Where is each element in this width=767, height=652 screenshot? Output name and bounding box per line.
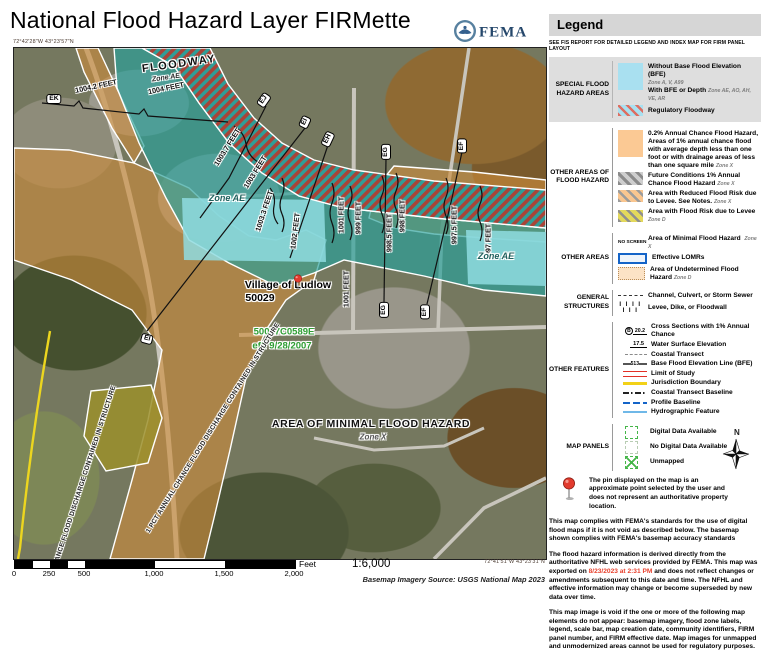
cross-section-value: 20.2 <box>633 328 647 335</box>
export-date: 8/23/2023 at 2:31 PM <box>589 568 653 575</box>
coastal-transect-icon <box>613 354 647 355</box>
legend-section-structures: GENERAL STRUCTURES Channel, Culvert, or … <box>549 290 761 316</box>
location-pin-icon <box>293 274 304 290</box>
map-label: 1001 FEET <box>342 271 351 307</box>
map-overlay-graphics <box>14 48 546 559</box>
swatch-sfha-cyan <box>618 63 643 90</box>
bfe-value: 513 <box>631 361 639 367</box>
legend-pin-icon <box>561 477 577 501</box>
sfha-row1-zone: Zone A, V, A99 <box>648 80 683 86</box>
feature-row-title: Profile Baseline <box>651 399 700 407</box>
fema-logo: FEMA <box>452 17 540 45</box>
structures-row1-title: Channel, Culvert, or Storm Sewer <box>648 292 753 300</box>
cross-section-letter: B <box>625 327 633 335</box>
legend-section-sfha: SPECIAL FLOOD HAZARD AREAS Without Base … <box>549 57 761 122</box>
map-label: Village of Ludlow <box>245 279 331 291</box>
profile-baseline-icon <box>613 402 647 404</box>
cross-section-label: EF <box>457 139 467 154</box>
cross-section-label: EG <box>379 302 389 318</box>
unmapped-icon <box>625 456 638 469</box>
other-areas-row3-zone: Zone D <box>674 275 692 281</box>
map-panels-row1-title: Digital Data Available <box>650 428 717 436</box>
wse-value: 17.5 <box>630 341 647 348</box>
other-areas-label: OTHER AREAS <box>549 254 612 262</box>
map-label: Zone X <box>360 433 387 442</box>
legend-title: Legend <box>549 14 761 36</box>
other-flood-row4-zone: Zone D <box>648 217 666 223</box>
scale-tick: 250 <box>43 569 56 578</box>
legend-subtitle: SEE FIS REPORT FOR DETAILED LEGEND AND I… <box>549 40 761 52</box>
north-arrow-icon: N <box>719 426 753 472</box>
map-label: 998.5 FEET <box>385 214 394 252</box>
feature-row-title: Hydrographic Feature <box>651 408 720 416</box>
structures-row2-title: Levee, Dike, or Floodwall <box>648 304 727 312</box>
limit-of-study-icon <box>613 371 647 377</box>
map-label: 999 FEET <box>354 202 363 234</box>
basemap-source-note: Basemap Imagery Source: USGS National Ma… <box>363 575 545 584</box>
other-flood-label: OTHER AREAS OF FLOOD HAZARD <box>549 169 612 185</box>
other-areas-row2-title: Effective LOMRs <box>652 254 704 262</box>
legend-section-map-panels: MAP PANELS Digital Data Available No Dig… <box>549 424 761 471</box>
feature-row-title: Water Surface Elevation <box>651 341 726 349</box>
channel-line-icon <box>618 295 643 296</box>
other-areas-row1-title: Area of Minimal Flood Hazard <box>648 235 741 242</box>
other-flood-row3-title: Area with Reduced Flood Risk due to Leve… <box>648 190 756 205</box>
north-label: N <box>734 428 740 437</box>
pin-note-text: The pin displayed on the map is an appro… <box>589 477 739 511</box>
map-panels-row2-title: No Digital Data Available <box>650 443 727 451</box>
swatch-02pct-orange <box>618 130 643 157</box>
note-standards: This map complies with FEMA's standards … <box>549 518 761 544</box>
other-flood-row3-zone: Zone X <box>714 199 731 205</box>
note-export: The flood hazard information is derived … <box>549 551 761 602</box>
flood-zones-layer <box>14 48 546 559</box>
sfha-row2-title: With BFE or Depth <box>648 87 706 94</box>
scale-tick: 500 <box>78 569 91 578</box>
hydrographic-feature-icon <box>613 411 647 413</box>
swatch-levee-zone-d <box>618 210 643 222</box>
notes-block: This map complies with FEMA's standards … <box>549 518 761 652</box>
map-label: 1001 FEET <box>337 197 346 233</box>
legend-section-other-areas: OTHER AREAS NO SCREEN Area of Minimal Fl… <box>549 233 761 284</box>
map-label: 997.5 FEET <box>450 206 459 244</box>
swatch-reduced-risk-levee <box>618 190 643 202</box>
feature-row-title: Jurisdiction Boundary <box>651 379 721 387</box>
scale-unit-label: Feet <box>299 559 316 569</box>
cross-section-label: EG <box>381 144 391 160</box>
water-surface-elevation-icon: 17.5 <box>613 341 647 348</box>
page-title: National Flood Hazard Layer FIRMette <box>10 7 411 34</box>
scale-tick: 0 <box>12 569 16 578</box>
feature-row-title: Base Flood Elevation Line (BFE) <box>651 360 752 368</box>
other-flood-row2-zone: Zone X <box>717 181 734 187</box>
sfha-row3-title: Regulatory Floodway <box>648 107 715 115</box>
coastal-transect-baseline-icon <box>613 392 647 394</box>
other-flood-row1-zone: Zone X <box>716 163 733 169</box>
jurisdiction-boundary-icon <box>613 382 647 386</box>
other-flood-row1-title: 0.2% Annual Chance Flood Hazard, Areas o… <box>648 130 758 169</box>
sfha-label: SPECIAL FLOOD HAZARD AREAS <box>549 81 612 97</box>
no-digital-data-icon <box>625 441 638 454</box>
scale-tick: 2,000 <box>284 569 303 578</box>
scale-tick: 1,000 <box>144 569 163 578</box>
pin-note-row: The pin displayed on the map is an appro… <box>549 477 761 511</box>
fema-wordmark: FEMA <box>479 25 527 41</box>
feature-row-title: Coastal Transect <box>651 351 704 359</box>
map-label: 50027C0589E <box>254 327 315 338</box>
cross-section-label: EK <box>46 94 61 104</box>
map-label: Zone AE <box>209 193 245 203</box>
map-coordinate-top-left: 72°42'28"W 43°23'57"N <box>13 39 74 45</box>
map-ratio: 1:6,000 <box>352 558 390 570</box>
map-label: 50029 <box>245 292 274 304</box>
legend-section-other-features: OTHER FEATURES B 20.2 Cross Sections wit… <box>549 322 761 418</box>
swatch-undetermined <box>618 267 645 280</box>
swatch-effective-lomrs <box>618 253 647 264</box>
other-features-label: OTHER FEATURES <box>549 366 612 374</box>
scale-bar <box>14 560 296 569</box>
feature-row-title: Coastal Transect Baseline <box>651 389 733 397</box>
other-flood-row4-title: Area with Flood Risk due to Levee <box>648 208 755 215</box>
digital-data-icon <box>625 426 638 439</box>
swatch-future-conditions <box>618 172 643 185</box>
map-label: Zone AE <box>478 251 514 261</box>
map-coordinate-bottom-right: 72°41'51"W 43°23'31"N <box>484 559 545 565</box>
levee-ticks-icon: I I I I I I I <box>618 302 643 314</box>
swatch-no-screen: NO SCREEN <box>618 240 643 245</box>
jurisdiction-boundary-line <box>18 331 50 559</box>
legend-section-other-flood: OTHER AREAS OF FLOOD HAZARD 0.2% Annual … <box>549 128 761 226</box>
feature-row-title: Cross Sections with 1% Annual Chance <box>651 323 761 339</box>
structures-label: GENERAL STRUCTURES <box>549 294 612 310</box>
map-panels-row3-title: Unmapped <box>650 458 684 466</box>
legend-panel: Legend SEE FIS REPORT FOR DETAILED LEGEN… <box>549 14 761 652</box>
sfha-row1-title: Without Base Flood Elevation (BFE) <box>648 63 741 78</box>
scale-tick: 1,500 <box>214 569 233 578</box>
map-panels-label: MAP PANELS <box>549 443 612 451</box>
note-void: This map image is void if the one or mor… <box>549 609 761 652</box>
map-label: AREA OF MINIMAL FLOOD HAZARD <box>272 418 470 430</box>
other-areas-row3-title: Area of Undetermined Flood Hazard <box>650 266 739 281</box>
feature-row-title: Limit of Study <box>651 370 695 378</box>
firmette-page: { "header": { "title": "National Flood H… <box>0 0 767 593</box>
swatch-regulatory-floodway <box>618 105 643 116</box>
cross-section-icon: B 20.2 <box>613 327 647 335</box>
flood-map: FLOODWAYZone AE1004.2 FEET1004 FEETEKEJ1… <box>13 47 547 560</box>
map-label: 998 FEET <box>398 200 407 232</box>
cross-section-label: EF <box>420 305 430 320</box>
bfe-line-icon: 513 <box>613 361 647 367</box>
